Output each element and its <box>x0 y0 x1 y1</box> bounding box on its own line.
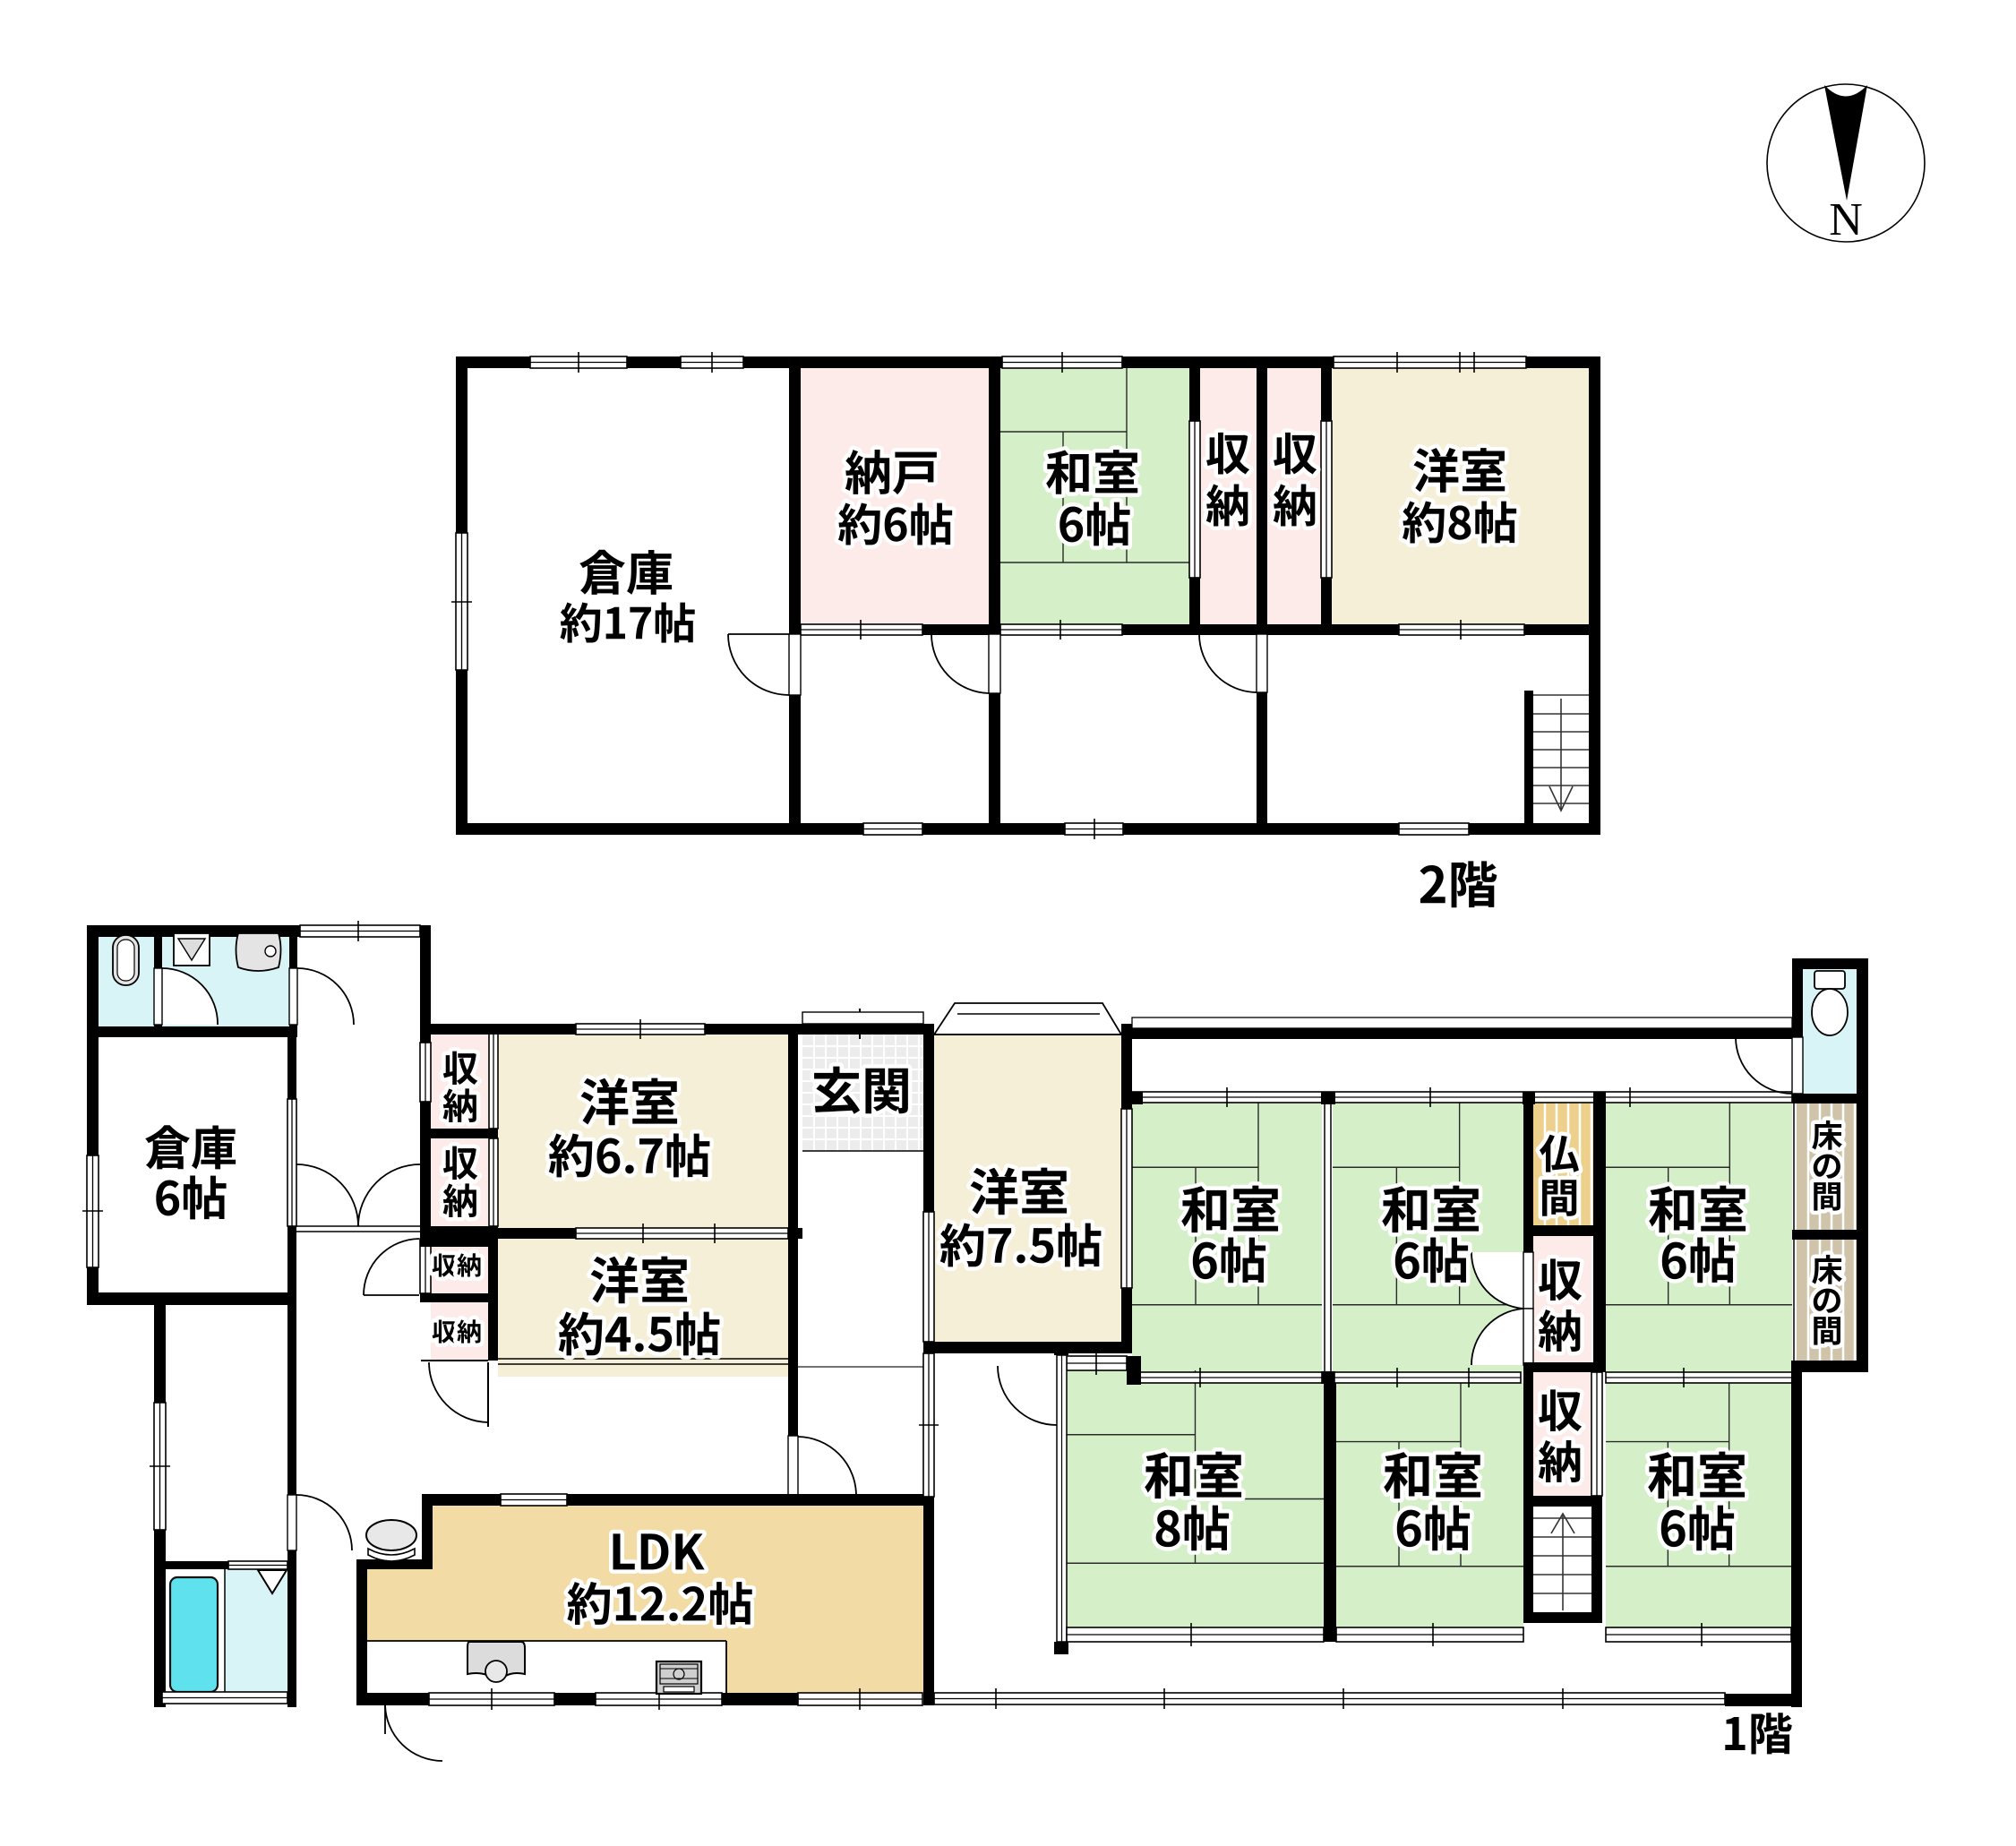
svg-text:N: N <box>1829 194 1863 245</box>
